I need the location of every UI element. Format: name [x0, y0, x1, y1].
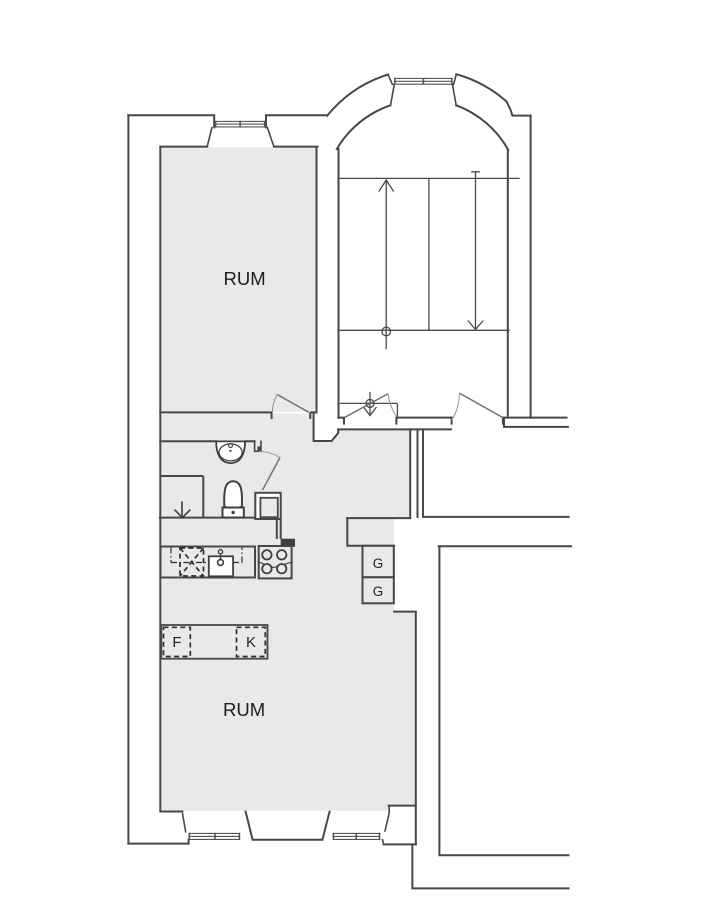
svg-text:RUM: RUM — [224, 268, 266, 289]
svg-text:K: K — [246, 634, 256, 651]
svg-text:G: G — [373, 584, 384, 599]
svg-text:F: F — [172, 634, 181, 651]
svg-text:RUM: RUM — [223, 699, 265, 720]
svg-text:G: G — [373, 556, 384, 571]
